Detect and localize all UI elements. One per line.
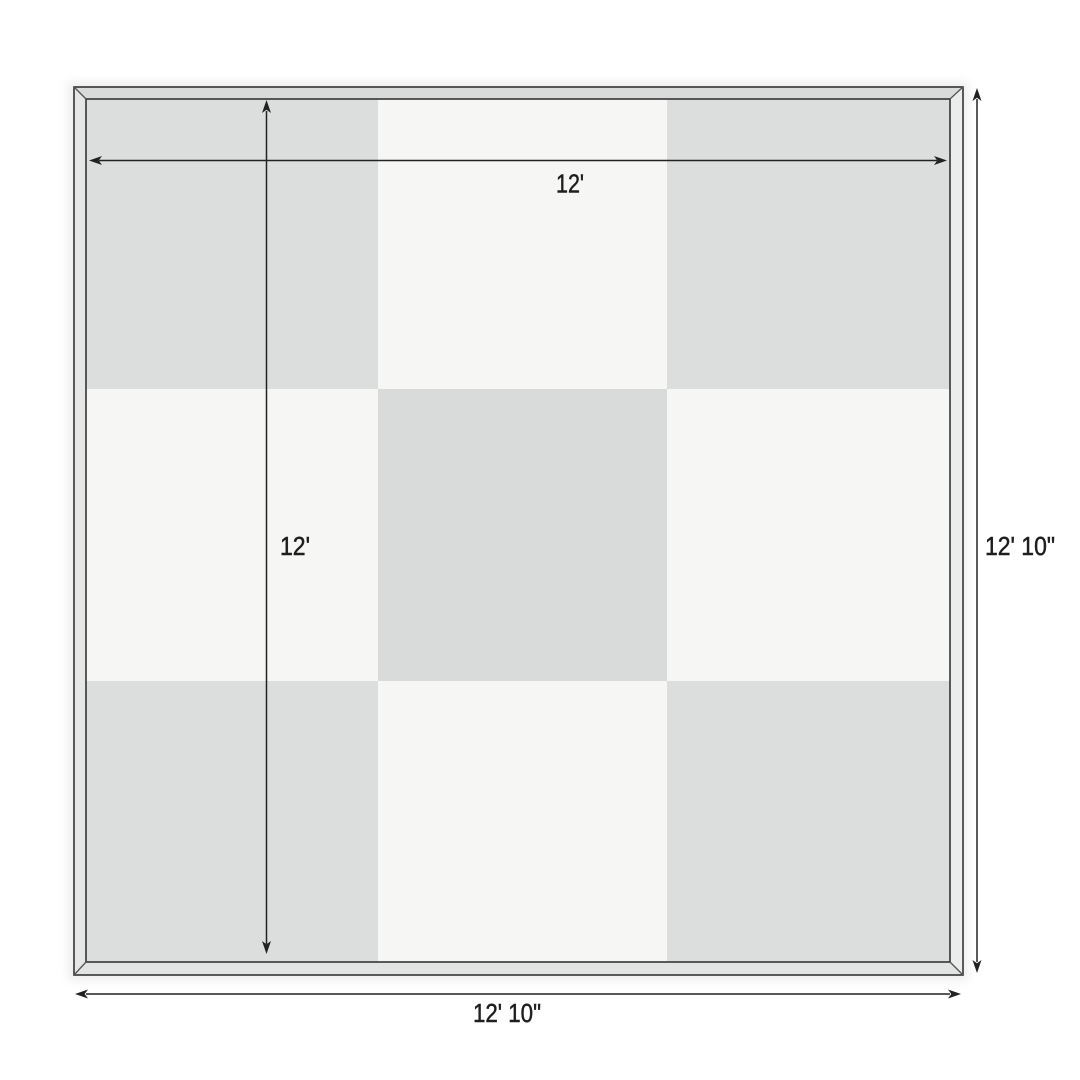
svg-text:12': 12' — [280, 531, 310, 561]
svg-text:12' 10": 12' 10" — [473, 998, 541, 1028]
svg-text:12' 10": 12' 10" — [985, 531, 1055, 561]
svg-text:12': 12' — [556, 169, 584, 199]
